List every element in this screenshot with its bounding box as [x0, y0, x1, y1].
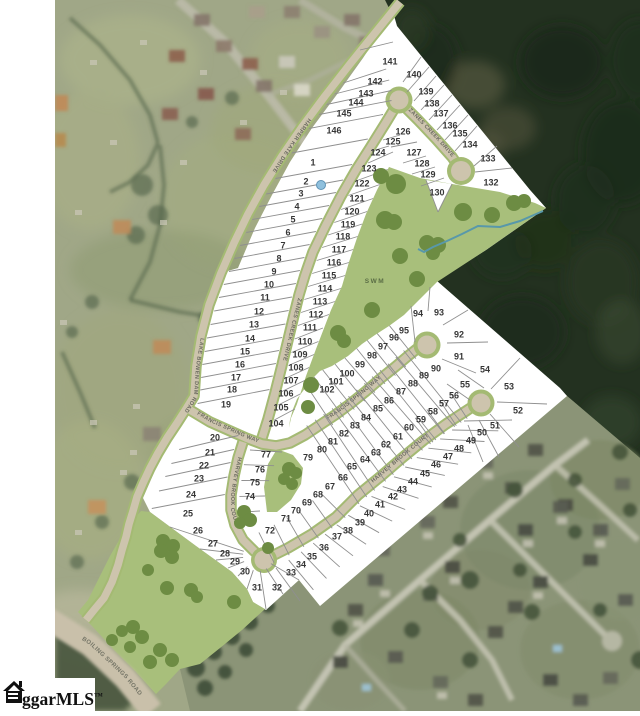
svg-text:138: 138 — [424, 99, 439, 109]
svg-text:113: 113 — [313, 297, 328, 307]
svg-text:75: 75 — [250, 478, 260, 488]
svg-text:94: 94 — [413, 309, 423, 319]
svg-text:146: 146 — [326, 126, 341, 136]
svg-text:128: 128 — [414, 159, 429, 169]
svg-text:61: 61 — [393, 432, 403, 442]
svg-text:127: 127 — [406, 148, 421, 158]
svg-text:54: 54 — [480, 365, 490, 375]
svg-text:72: 72 — [265, 526, 275, 536]
svg-text:7: 7 — [280, 241, 285, 251]
svg-text:41: 41 — [375, 500, 385, 510]
svg-text:64: 64 — [360, 455, 370, 465]
svg-text:39: 39 — [355, 518, 365, 528]
svg-text:32: 32 — [272, 583, 282, 593]
svg-text:84: 84 — [361, 413, 371, 423]
svg-text:65: 65 — [347, 462, 357, 472]
svg-text:12: 12 — [254, 307, 264, 317]
svg-text:36: 36 — [319, 543, 329, 553]
svg-text:9: 9 — [271, 267, 276, 277]
svg-text:69: 69 — [302, 498, 312, 508]
svg-text:51: 51 — [490, 421, 500, 431]
svg-text:38: 38 — [343, 526, 353, 536]
svg-text:79: 79 — [303, 453, 313, 463]
svg-text:45: 45 — [420, 469, 430, 479]
svg-text:13: 13 — [249, 320, 259, 330]
svg-text:16: 16 — [235, 360, 245, 370]
svg-text:8: 8 — [276, 254, 281, 264]
svg-text:130: 130 — [429, 188, 444, 198]
svg-text:100: 100 — [339, 369, 354, 379]
svg-text:3: 3 — [298, 189, 303, 199]
svg-text:47: 47 — [443, 452, 453, 462]
svg-text:20: 20 — [210, 433, 220, 443]
svg-text:120: 120 — [344, 207, 359, 217]
svg-text:71: 71 — [281, 514, 291, 524]
svg-text:44: 44 — [408, 477, 418, 487]
svg-text:108: 108 — [288, 363, 303, 373]
svg-text:43: 43 — [397, 485, 407, 495]
svg-text:10: 10 — [264, 280, 274, 290]
svg-text:18: 18 — [227, 385, 237, 395]
svg-text:46: 46 — [431, 460, 441, 470]
svg-text:59: 59 — [416, 415, 426, 425]
svg-text:55: 55 — [460, 380, 470, 390]
svg-text:ggarMLS™: ggarMLS™ — [22, 689, 103, 709]
svg-text:109: 109 — [292, 350, 307, 360]
svg-text:60: 60 — [404, 423, 414, 433]
svg-text:34: 34 — [296, 560, 306, 570]
svg-text:33: 33 — [286, 568, 296, 578]
svg-text:124: 124 — [370, 148, 385, 158]
svg-text:30: 30 — [240, 567, 250, 577]
svg-text:91: 91 — [454, 352, 464, 362]
svg-text:86: 86 — [384, 396, 394, 406]
svg-text:112: 112 — [309, 310, 324, 320]
svg-text:99: 99 — [355, 360, 365, 370]
svg-text:14: 14 — [245, 334, 255, 344]
svg-text:1: 1 — [310, 158, 315, 168]
svg-text:114: 114 — [318, 284, 333, 294]
svg-text:57: 57 — [439, 399, 449, 409]
svg-text:52: 52 — [513, 406, 523, 416]
svg-text:83: 83 — [350, 421, 360, 431]
svg-text:76: 76 — [255, 465, 265, 475]
svg-text:24: 24 — [186, 490, 196, 500]
svg-text:111: 111 — [303, 323, 317, 333]
svg-text:SWM: SWM — [365, 278, 385, 285]
svg-text:67: 67 — [325, 482, 335, 492]
svg-text:104: 104 — [268, 419, 283, 429]
svg-text:144: 144 — [348, 98, 363, 108]
svg-text:82: 82 — [339, 429, 349, 439]
svg-text:95: 95 — [399, 326, 409, 336]
svg-text:85: 85 — [373, 404, 383, 414]
svg-text:48: 48 — [454, 444, 464, 454]
svg-text:35: 35 — [307, 552, 317, 562]
svg-text:92: 92 — [454, 330, 464, 340]
svg-text:6: 6 — [285, 228, 290, 238]
svg-text:126: 126 — [395, 127, 410, 137]
svg-text:97: 97 — [378, 342, 388, 352]
svg-text:11: 11 — [260, 293, 270, 303]
svg-text:56: 56 — [449, 391, 459, 401]
svg-text:90: 90 — [431, 364, 441, 374]
svg-text:21: 21 — [205, 448, 215, 458]
svg-text:125: 125 — [385, 137, 400, 147]
svg-text:87: 87 — [396, 387, 406, 397]
svg-text:5: 5 — [290, 215, 295, 225]
svg-text:40: 40 — [364, 509, 374, 519]
svg-text:68: 68 — [313, 490, 323, 500]
svg-text:137: 137 — [433, 109, 448, 119]
svg-text:22: 22 — [199, 461, 209, 471]
svg-text:118: 118 — [336, 232, 351, 242]
svg-text:31: 31 — [252, 583, 262, 593]
svg-text:2: 2 — [303, 177, 308, 187]
svg-text:93: 93 — [434, 308, 444, 318]
svg-text:121: 121 — [349, 194, 364, 204]
svg-text:132: 132 — [483, 178, 498, 188]
svg-text:133: 133 — [480, 154, 495, 164]
svg-text:134: 134 — [462, 140, 477, 150]
svg-text:98: 98 — [367, 351, 377, 361]
svg-text:58: 58 — [428, 407, 438, 417]
svg-text:29: 29 — [230, 557, 240, 567]
svg-text:53: 53 — [504, 382, 514, 392]
svg-text:37: 37 — [332, 532, 342, 542]
svg-text:28: 28 — [220, 549, 230, 559]
svg-text:80: 80 — [317, 445, 327, 455]
svg-text:140: 140 — [406, 70, 421, 80]
svg-text:89: 89 — [419, 371, 429, 381]
svg-text:106: 106 — [278, 389, 293, 399]
svg-text:110: 110 — [298, 337, 313, 347]
svg-text:116: 116 — [327, 258, 342, 268]
svg-text:145: 145 — [336, 109, 351, 119]
svg-text:129: 129 — [420, 170, 435, 180]
svg-text:107: 107 — [283, 376, 298, 386]
svg-text:49: 49 — [466, 436, 476, 446]
svg-text:119: 119 — [341, 220, 356, 230]
svg-text:66: 66 — [338, 473, 348, 483]
svg-text:74: 74 — [245, 492, 255, 502]
svg-text:15: 15 — [240, 347, 250, 357]
svg-text:63: 63 — [371, 448, 381, 458]
svg-text:141: 141 — [382, 57, 397, 67]
svg-text:17: 17 — [231, 373, 241, 383]
svg-text:96: 96 — [389, 333, 399, 343]
svg-text:122: 122 — [354, 179, 369, 189]
svg-text:25: 25 — [183, 509, 193, 519]
svg-text:123: 123 — [361, 164, 376, 174]
svg-text:115: 115 — [322, 271, 337, 281]
svg-text:23: 23 — [194, 474, 204, 484]
svg-text:142: 142 — [367, 77, 382, 87]
svg-text:70: 70 — [291, 506, 301, 516]
svg-text:105: 105 — [273, 403, 288, 413]
svg-text:117: 117 — [332, 245, 347, 255]
svg-text:77: 77 — [261, 450, 271, 460]
svg-text:50: 50 — [477, 428, 487, 438]
svg-text:19: 19 — [221, 400, 231, 410]
svg-text:26: 26 — [193, 526, 203, 536]
svg-text:135: 135 — [452, 129, 467, 139]
svg-text:139: 139 — [418, 87, 433, 97]
svg-text:81: 81 — [328, 437, 338, 447]
svg-text:27: 27 — [208, 539, 218, 549]
svg-text:62: 62 — [381, 440, 391, 450]
svg-text:4: 4 — [294, 202, 299, 212]
svg-text:88: 88 — [408, 379, 418, 389]
